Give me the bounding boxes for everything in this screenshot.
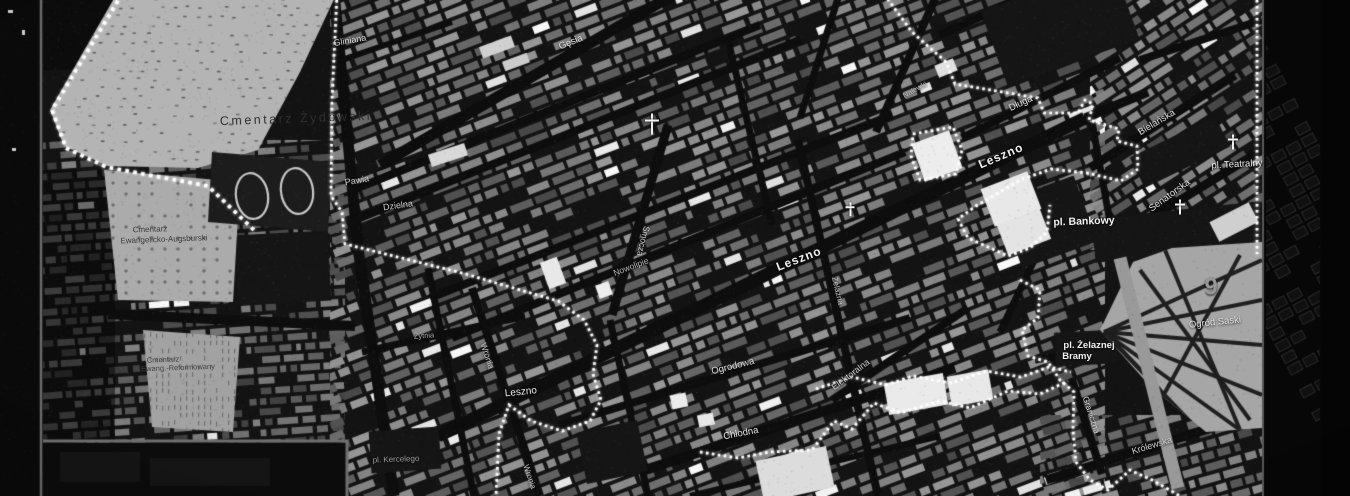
church-cross-icon <box>846 202 855 216</box>
street-label-nowolipie: Nowolipie <box>612 256 650 278</box>
street-label-nalewki: Nalewki <box>902 80 929 100</box>
street-label-gesia: Gęsia <box>558 34 585 53</box>
street-label-bielanska: Bielańska <box>1137 108 1177 138</box>
street-label-chlodna: Chłodna <box>723 426 760 443</box>
street-label-leszno-east: Leszno <box>977 141 1026 171</box>
cemetery-label-ewang-augsburski-line2: Ewangelicko-Augsburski <box>120 234 207 245</box>
cemetery-label-ewang-augsburski-line1: Cmentarz <box>133 225 168 235</box>
street-label-dluga: Długa <box>1008 94 1035 114</box>
street-label-pawia: Pawia <box>344 174 370 188</box>
street-label-dzielna: Dzielna <box>382 199 413 213</box>
street-label-zelazna: Żelazna <box>830 276 845 306</box>
place-label-pl-bankowy: pl. Bankowy <box>1053 215 1115 228</box>
street-label-smocza: Smocza <box>635 225 651 257</box>
district-number-9: 9 <box>1204 274 1217 299</box>
cemetery-label-zydowski: Cmentarz Żydowski <box>220 110 373 128</box>
street-label-gliniana: Gliniana <box>333 33 367 48</box>
street-label-ogrodowa: Ogrodowa <box>711 357 756 377</box>
street-label-senatorska: Senatorska <box>1148 178 1193 214</box>
park-label-ogrod-saski: Ogród Saski <box>1188 315 1241 330</box>
street-label-wronia: Wronia <box>479 342 496 370</box>
street-label-leszno-west: Leszno <box>504 386 537 400</box>
place-label-pl-zelaznej-line2: Bramy <box>1062 352 1092 362</box>
map-labels-layer: Cmentarz ŻydowskiCmentarzEwangelicko-Aug… <box>0 0 1350 496</box>
street-label-elektoralna: Elektoralna <box>830 358 872 393</box>
church-cross-icon <box>1228 135 1238 150</box>
street-label-wronia-south: Wronia <box>521 464 537 491</box>
cemetery-label-ewang-reform-line2: Ewang.-Reformowany <box>141 363 215 373</box>
church-cross-icon <box>1175 200 1185 215</box>
place-label-pl-teatralny: pl. Teatralny <box>1211 159 1263 172</box>
place-label-pl-kercelego: pl. Kercelego <box>373 455 420 465</box>
street-label-krolewska: Królewska <box>1131 435 1173 456</box>
map-viewport: Cmentarz ŻydowskiCmentarzEwangelicko-Aug… <box>0 0 1350 496</box>
street-label-zytnia: Żytnia <box>414 331 435 340</box>
place-label-pl-zelaznej-line1: pl. Żelaznej <box>1063 341 1114 351</box>
church-cross-icon <box>645 114 659 135</box>
street-label-leszno-center: Leszno <box>775 245 824 274</box>
street-label-graniczna: Graniczna <box>1081 395 1101 435</box>
